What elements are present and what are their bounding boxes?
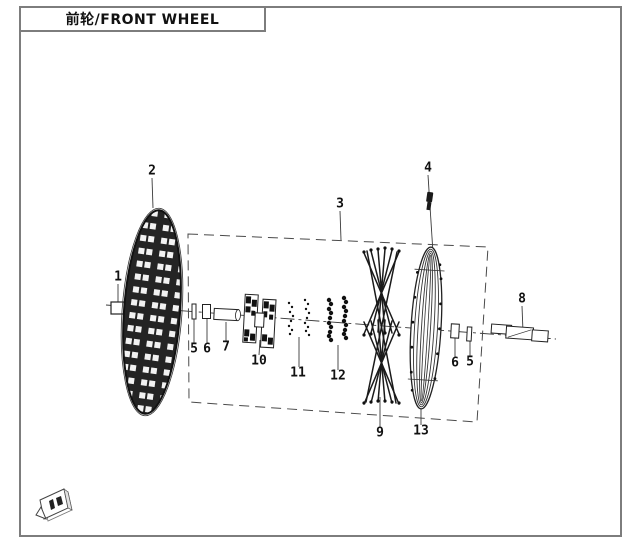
callout-label-3: 3 xyxy=(336,198,344,211)
bushing-left-graphic xyxy=(203,305,211,319)
spacer-sleeve-graphic xyxy=(214,308,241,320)
washer-right-graphic xyxy=(467,327,472,341)
washer-left-graphic xyxy=(192,304,196,319)
callout-label-7: 7 xyxy=(222,341,230,354)
tire-graphic xyxy=(115,206,189,418)
callout-label-9: 9 xyxy=(376,427,384,440)
callout-label-2: 2 xyxy=(148,165,156,178)
callout-label-12: 12 xyxy=(330,370,346,383)
callout-label-1: 1 xyxy=(114,271,122,284)
nipples-large-graphic xyxy=(327,296,348,342)
axle-graphic xyxy=(491,324,549,342)
drawing-page: 前轮/FRONT WHEEL xyxy=(0,0,630,547)
valve-stem-graphic xyxy=(425,192,433,211)
spokes-graphic xyxy=(362,246,400,404)
callout-label-8: 8 xyxy=(518,293,526,306)
callout-label-5: 5 xyxy=(466,356,474,369)
callout-label-6: 6 xyxy=(451,357,459,370)
callout-label-11: 11 xyxy=(290,367,306,380)
callout-label-10: 10 xyxy=(251,355,267,368)
callout-label-13: 13 xyxy=(413,425,429,438)
brand-logo-icon xyxy=(36,489,72,521)
diagram-canvas xyxy=(0,0,630,547)
callout-label-4: 4 xyxy=(424,162,432,175)
rim-graphic xyxy=(406,246,446,410)
assembly-dashed-box xyxy=(188,234,488,422)
callout-label-6: 6 xyxy=(203,343,211,356)
bushing-right-graphic xyxy=(451,324,460,338)
nipples-small-graphic xyxy=(288,299,310,336)
hub-graphic xyxy=(243,294,277,348)
callout-label-5: 5 xyxy=(190,343,198,356)
